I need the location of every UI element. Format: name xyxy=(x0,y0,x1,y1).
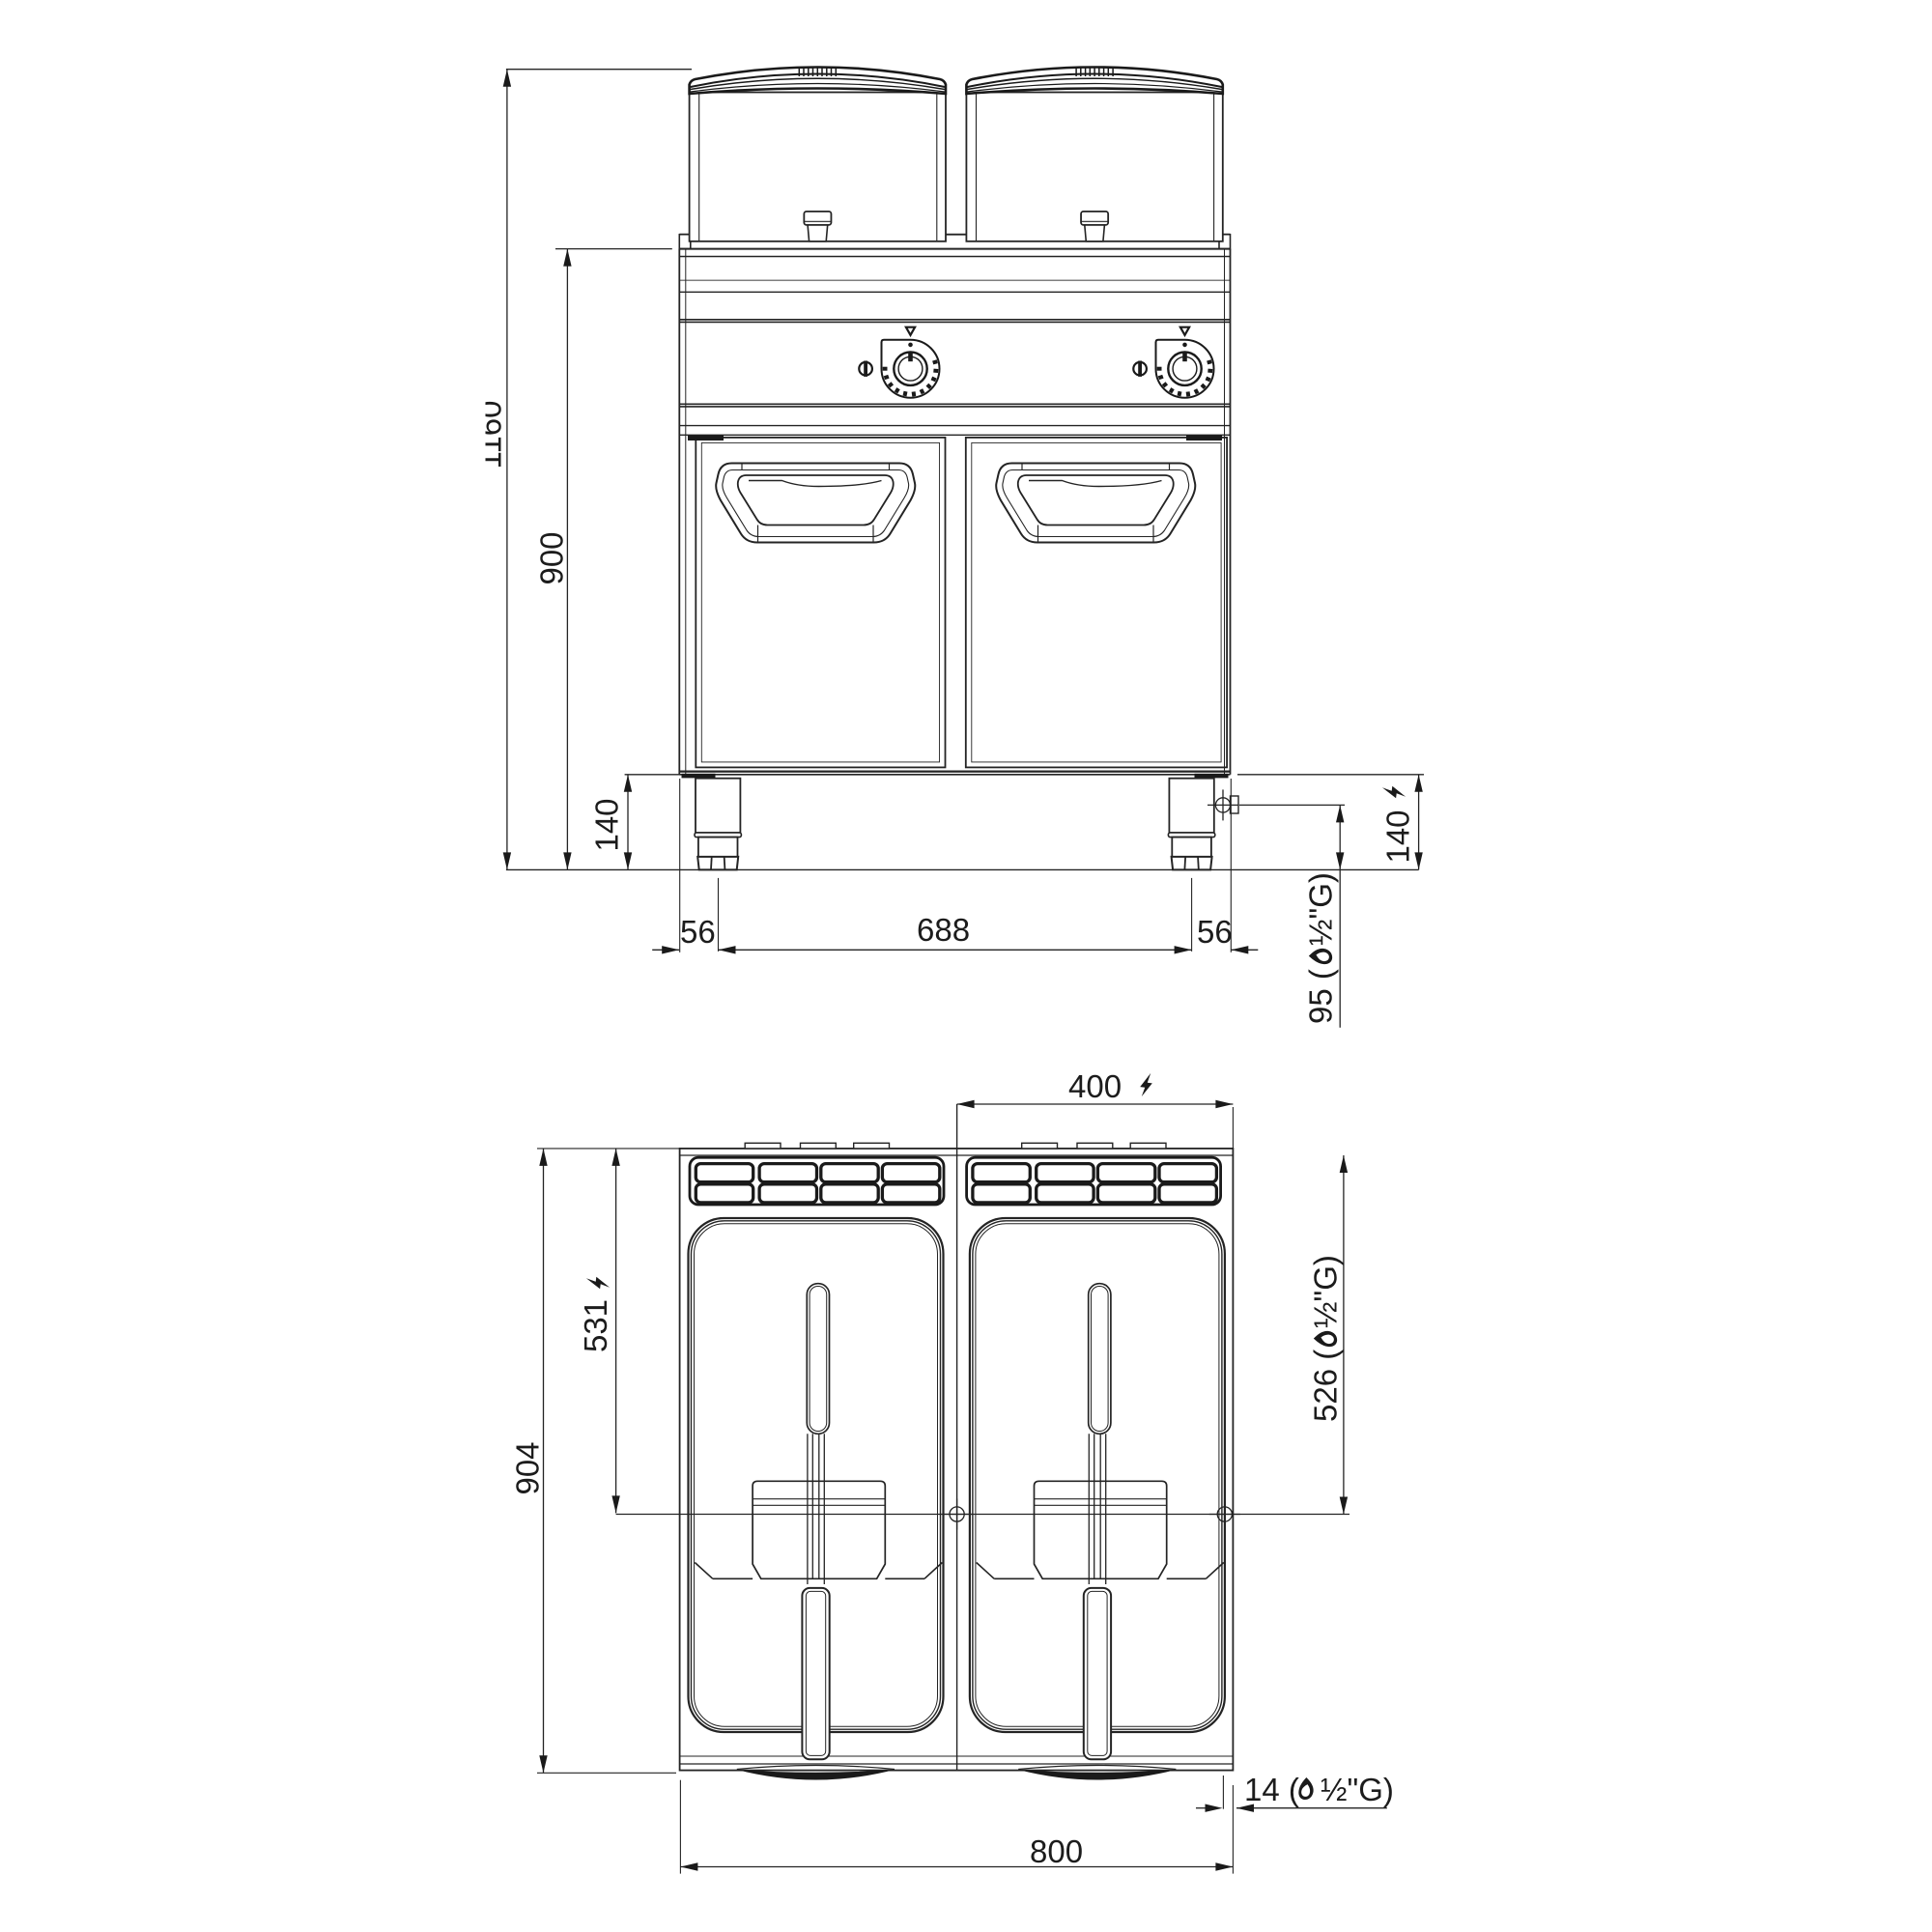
svg-text:688: 688 xyxy=(917,912,970,948)
svg-text:½"G): ½"G) xyxy=(1321,1772,1394,1807)
svg-text:904: 904 xyxy=(510,1441,546,1494)
svg-text:800: 800 xyxy=(1030,1833,1083,1869)
svg-text:140: 140 xyxy=(1380,810,1416,863)
svg-text:½"G): ½"G) xyxy=(1308,1255,1344,1328)
svg-text:½"G): ½"G) xyxy=(1303,872,1339,946)
svg-text:400: 400 xyxy=(1068,1068,1122,1104)
svg-text:531: 531 xyxy=(578,1299,613,1352)
svg-text:56: 56 xyxy=(680,914,716,950)
svg-text:56: 56 xyxy=(1197,914,1233,950)
svg-text:140: 140 xyxy=(589,798,625,851)
svg-text:900: 900 xyxy=(534,531,570,584)
svg-text:526 (: 526 ( xyxy=(1308,1350,1344,1422)
svg-text:14 (: 14 ( xyxy=(1244,1772,1299,1807)
svg-text:95 (: 95 ( xyxy=(1303,969,1339,1024)
